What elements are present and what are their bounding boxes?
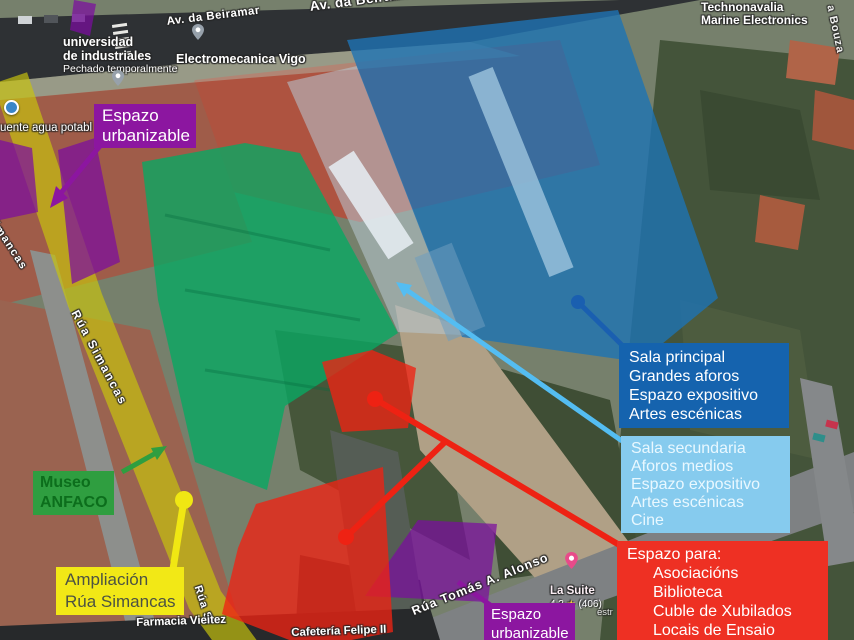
annotation-line: Espazo <box>102 106 190 126</box>
blue-dot <box>571 295 585 309</box>
map-label-fragment-estr: estr <box>597 608 613 618</box>
red-dot-2 <box>338 529 354 545</box>
map-pin-icon[interactable] <box>192 24 204 40</box>
annotation-espazo-urbanizable-top: Espazo urbanizable <box>94 104 196 148</box>
annotation-espazo-para: Espazo para: Asociacións Biblioteca Cubl… <box>617 541 828 640</box>
annotation-line: Grandes aforos <box>629 367 781 386</box>
annotation-line: Aforos medios <box>631 458 782 476</box>
fountain-poi-icon[interactable] <box>4 100 19 115</box>
yellow-dot <box>175 491 193 509</box>
poi-universidad-line1: universidad <box>63 36 177 50</box>
map-pin-icon[interactable] <box>112 70 124 86</box>
poi-universidad-line2: de industriales <box>63 50 177 64</box>
annotated-satellite-map: Av. da Beiramar Av. da Beiramar universi… <box>0 0 854 640</box>
annotation-line: Cine <box>631 512 782 530</box>
annotation-title: Espazo para: <box>627 545 820 564</box>
annotation-line: Museo <box>40 473 108 493</box>
annotation-sala-principal: Sala principal Grandes aforos Espazo exp… <box>619 343 789 428</box>
annotation-espazo-urbanizable-bottom: Espazo urbanizable <box>484 603 575 640</box>
annotation-item: Cuble de Xubilados <box>653 602 820 621</box>
annotation-item: Biblioteca <box>653 583 820 602</box>
red-dot-1 <box>367 391 383 407</box>
annotation-line: urbanizable <box>102 126 190 146</box>
annotation-line: Sala secundaria <box>631 440 782 458</box>
annotation-line: Artes escénicas <box>631 494 782 512</box>
annotation-item: Locais de Ensaio <box>653 621 820 640</box>
poi-electromecanica[interactable]: Electromecanica Vigo <box>176 53 306 67</box>
annotation-sala-secundaria: Sala secundaria Aforos medios Espazo exp… <box>621 436 790 533</box>
poi-technonavalia-line2: Marine Electronics <box>701 14 808 27</box>
annotation-line: Espazo <box>491 605 569 624</box>
poi-la-suite[interactable]: La Suite <box>550 585 595 598</box>
annotation-line: Rúa Simancas <box>65 591 176 613</box>
annotation-line: Espazo expositivo <box>631 476 782 494</box>
annotation-item: Asociacións <box>653 564 820 583</box>
poi-fuente[interactable]: uente agua potabl <box>0 122 92 135</box>
annotation-ampliacion-rua-simancas: Ampliación Rúa Simancas <box>56 567 184 615</box>
annotation-line: Sala principal <box>629 348 781 367</box>
hotel-pin-icon[interactable] <box>565 552 577 568</box>
poi-technonavalia[interactable]: Technonavalia Marine Electronics <box>701 1 808 27</box>
annotation-line: Espazo expositivo <box>629 386 781 405</box>
annotation-line: ANFACO <box>40 493 108 513</box>
annotation-line: Artes escénicas <box>629 405 781 424</box>
annotation-line: urbanizable <box>491 624 569 640</box>
annotation-museo-anfaco: Museo ANFACO <box>33 471 114 515</box>
annotation-line: Ampliación <box>65 569 176 591</box>
